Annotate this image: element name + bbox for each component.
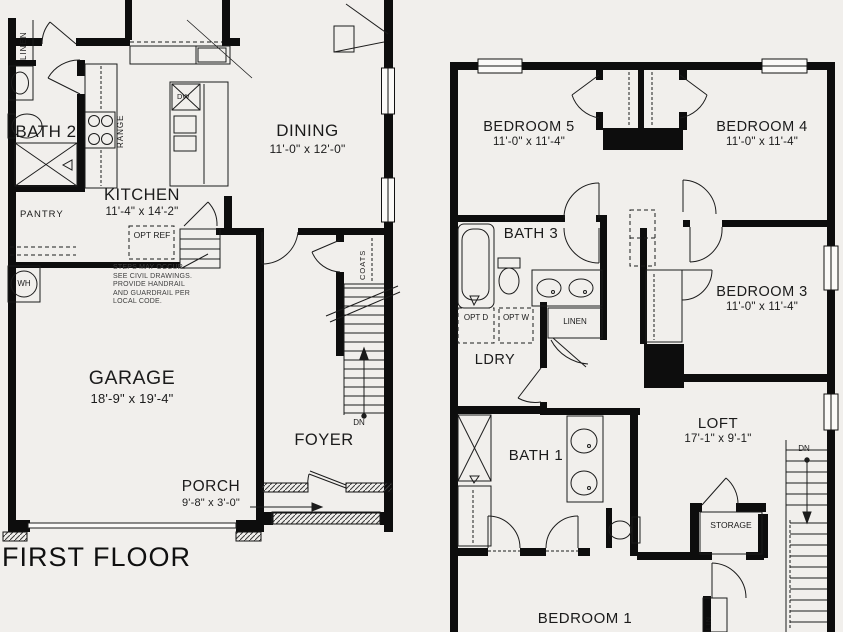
stairs-dn-label-first: DN [348,418,370,428]
room-label-bedroom5: BEDROOM 5 11'-0" x 11'-4" [455,119,603,148]
double-vanity-icon [532,270,602,306]
room-label-bath1: BATH 1 [494,447,578,464]
water-heater-label: WH [15,279,33,289]
stairs-down-arrow-icon [360,348,368,418]
opt-ref-label: OPT REF [131,231,173,241]
coats-closet-label: COATS [358,250,367,280]
room-label-bedroom4: BEDROOM 4 11'-0" x 11'-4" [688,119,836,148]
room-label-laundry: LDRY [455,352,535,368]
toilet-icon [498,258,520,268]
room-label-porch: PORCH 9'-8" x 3'-0" [152,478,270,509]
room-label-bedroom3: BEDROOM 3 11'-0" x 11'-4" [688,284,836,313]
floor-plan-drawing [0,0,843,632]
storage-label: STORAGE [700,521,762,531]
linen-closet-label-second: LINEN [549,317,601,327]
room-label-loft: LOFT 17'-1" x 9'-1" [658,415,778,445]
floor-plan-page: LINEN BATH 2 PANTRY KITCHEN 11'-4" x 14'… [0,0,843,632]
dishwasher-label: DW [177,92,190,101]
lin-closet-label: LIN. [706,613,713,630]
first-floor-title: FIRST FLOOR [2,542,191,573]
first-floor-walls [8,0,393,532]
room-label-bedroom1: BEDROOM 1 [495,610,675,627]
toilet-icon [609,521,631,539]
range-label: RANGE [116,115,125,148]
civil-note: STEPS MAY OCCUR. SEE CIVIL DRAWINGS. PRO… [113,264,193,307]
stairs-down-arrow-icon [803,458,811,523]
linen-closet-label: LINEN [19,31,28,60]
room-label-kitchen: KITCHEN 11'-4" x 14'-2" [82,186,202,218]
stairs-dn-label-second: DN [793,444,815,454]
shower-head-icon [63,160,72,170]
room-label-bath2: BATH 2 [8,122,84,142]
room-label-bath3: BATH 3 [490,225,572,242]
first-floor-plan [3,0,400,541]
pantry-label: PANTRY [20,209,64,220]
room-label-garage: GARAGE 18'-9" x 19'-4" [58,367,206,406]
room-label-dining: DINING 11'-0" x 12'-0" [240,121,375,156]
room-label-foyer: FOYER [268,431,380,450]
opt-washer-label: OPT W [500,313,532,323]
opt-dryer-label: OPT D [459,313,493,323]
kitchen-sink-icon [174,116,196,133]
